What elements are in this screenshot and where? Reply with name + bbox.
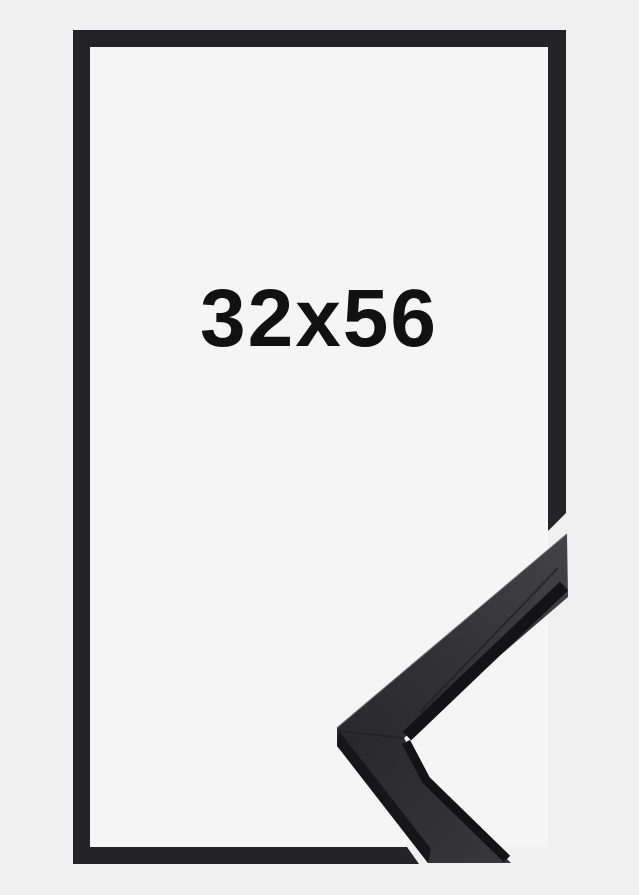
frame-border-right — [548, 47, 566, 531]
size-label: 32x56 — [90, 278, 548, 360]
product-image: 32x56 — [0, 0, 639, 895]
frame-interior — [90, 47, 548, 847]
frame-border-bottom — [90, 847, 419, 864]
frame-border-top — [73, 30, 566, 47]
frame-preview-graphic — [0, 0, 639, 895]
frame-border-left — [73, 47, 90, 864]
